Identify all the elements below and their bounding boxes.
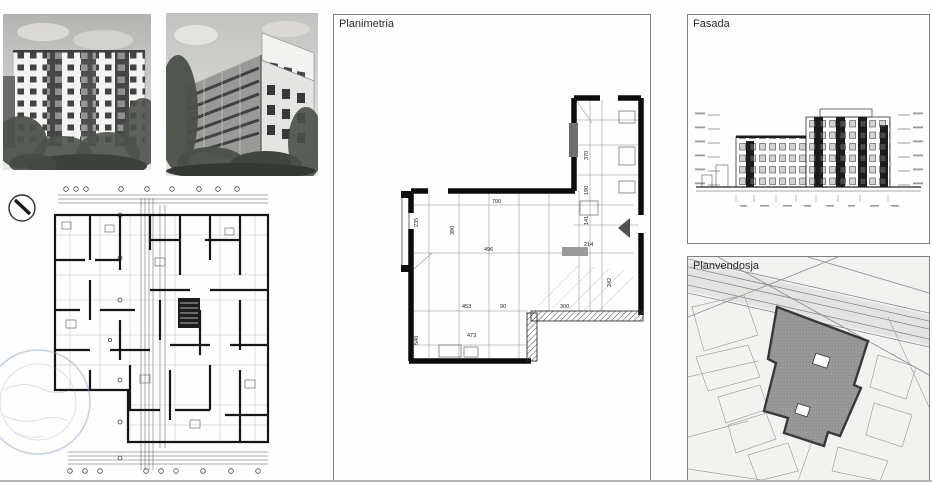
apartment-plan-graphic: 700 496 453 473 90 300 214 540 235 390 3… [334, 15, 650, 481]
dim-390: 390 [450, 226, 456, 235]
photo-building-front-render [3, 14, 151, 170]
dim-214: 214 [584, 242, 593, 248]
dim-141: 141 [584, 216, 590, 225]
plan-walls [55, 215, 268, 442]
grid-bubbles-bottom [68, 469, 261, 474]
panel-planimetria-title: Planimetria [339, 18, 394, 30]
dim-473: 473 [467, 333, 476, 339]
grid-bubbles-top [64, 187, 240, 192]
dim-700: 700 [492, 199, 501, 205]
dim-496: 496 [484, 247, 493, 253]
dim-540: 540 [414, 336, 420, 345]
dim-370: 370 [584, 151, 590, 160]
panel-fasada: Fasada [687, 14, 930, 244]
dim-453: 453 [462, 304, 471, 310]
stair-core [178, 298, 200, 328]
dim-190: 190 [584, 186, 590, 195]
architectural-drawing-sheet: Planimetria [0, 0, 932, 482]
dim-235: 235 [414, 218, 420, 227]
terrace-floor-lines [539, 265, 634, 311]
apartment-walls [409, 98, 641, 361]
dim-300: 300 [560, 304, 569, 310]
entrance-arrow-icon [618, 218, 630, 238]
front-render-graphic [3, 14, 151, 170]
corner-render-graphic [166, 13, 318, 176]
panel-fasada-title: Fasada [693, 18, 730, 30]
kitchen-counter [562, 247, 588, 256]
elevation-graphic [688, 15, 929, 243]
wall-niche [569, 123, 578, 157]
north-arrow-icon [9, 195, 35, 221]
dim-90: 90 [500, 304, 506, 310]
dim-row-illegible [740, 205, 899, 207]
stamp-seal [0, 350, 90, 454]
panel-planvendosja: Planvendosja [687, 256, 930, 482]
floor-plan-large-graphic [0, 180, 322, 482]
terrace-parapet [527, 311, 643, 361]
dim-242: 242 [607, 278, 613, 287]
ground-line [696, 187, 921, 207]
photo-building-corner-render [166, 13, 318, 176]
panel-planimetria: Planimetria [333, 14, 651, 482]
apartment-thin-lines [414, 100, 639, 361]
floor-plan-large [0, 180, 322, 482]
elevation-building [702, 109, 890, 187]
site-plan-graphic [688, 257, 929, 481]
panel-planvendosja-title: Planvendosja [693, 260, 759, 272]
plan-grid [55, 215, 268, 442]
